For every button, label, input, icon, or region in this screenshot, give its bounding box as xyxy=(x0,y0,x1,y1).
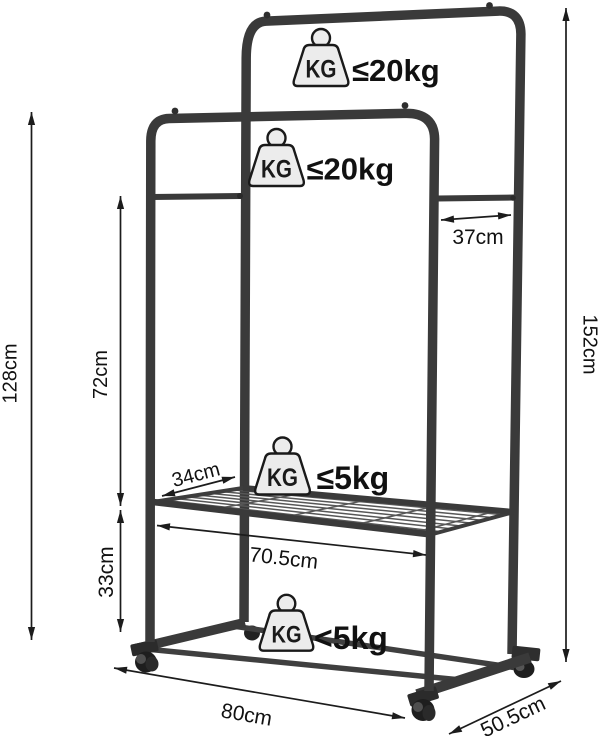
svg-text:33cm: 33cm xyxy=(95,546,118,597)
svg-text:152cm: 152cm xyxy=(579,314,600,374)
svg-text:≤20kg: ≤20kg xyxy=(307,152,395,187)
svg-text:37cm: 37cm xyxy=(452,226,503,249)
svg-text:128cm: 128cm xyxy=(0,343,22,403)
svg-text:<5kg: <5kg xyxy=(314,620,388,656)
svg-text:KG: KG xyxy=(272,621,302,648)
svg-text:≤5kg: ≤5kg xyxy=(317,460,390,496)
svg-text:KG: KG xyxy=(306,56,337,84)
svg-text:KG: KG xyxy=(267,464,298,492)
svg-text:≤20kg: ≤20kg xyxy=(352,53,440,88)
svg-text:72cm: 72cm xyxy=(90,350,112,399)
svg-text:KG: KG xyxy=(261,156,292,184)
